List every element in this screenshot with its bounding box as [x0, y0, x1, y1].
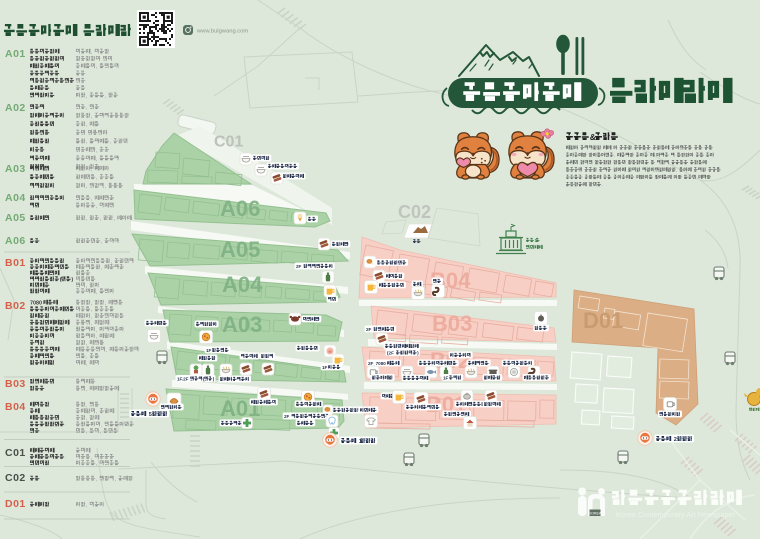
- svg-text:C02: C02: [398, 202, 431, 222]
- svg-text:.: .: [676, 168, 677, 173]
- svg-text:7080: 7080: [30, 301, 42, 307]
- svg-text:1F.2F: 1F.2F: [177, 377, 189, 382]
- svg-text:.: .: [614, 153, 615, 158]
- svg-text:A03: A03: [222, 312, 262, 337]
- svg-text:A01: A01: [5, 48, 26, 60]
- svg-text:B03: B03: [432, 311, 472, 336]
- svg-text:A02: A02: [5, 102, 26, 114]
- svg-text:2F: 2F: [368, 361, 374, 366]
- svg-text:A06: A06: [5, 235, 26, 247]
- svg-text:1F: 1F: [443, 376, 449, 381]
- svg-text:B01: B01: [5, 257, 26, 269]
- svg-text:C01: C01: [5, 447, 26, 459]
- svg-text:.: .: [601, 182, 602, 187]
- svg-text:C02: C02: [5, 472, 26, 484]
- svg-text:&: &: [590, 132, 596, 142]
- svg-text:A05: A05: [220, 237, 260, 262]
- svg-text:KOREA: KOREA: [589, 512, 602, 516]
- svg-text:A04: A04: [222, 272, 263, 297]
- svg-text:D01: D01: [583, 308, 623, 333]
- svg-text:1F: 1F: [206, 348, 212, 353]
- svg-text:7080: 7080: [376, 361, 387, 366]
- svg-text:(2F: (2F: [387, 351, 394, 356]
- svg-text:www.bulgwang.com: www.bulgwang.com: [196, 29, 248, 35]
- svg-text:D01: D01: [5, 498, 26, 510]
- svg-text:1F: 1F: [322, 365, 328, 370]
- svg-text:A04: A04: [5, 192, 26, 204]
- svg-text:2F: 2F: [366, 327, 372, 332]
- svg-text:2F: 2F: [284, 414, 290, 419]
- svg-text:A03: A03: [5, 163, 26, 175]
- svg-text:Korea Contemporary Art Newspap: Korea Contemporary Art Newspaper: [616, 510, 736, 519]
- svg-text:B04: B04: [5, 401, 26, 413]
- svg-text:B03: B03: [5, 378, 26, 390]
- svg-text:5: 5: [149, 412, 152, 418]
- svg-text:A05: A05: [5, 212, 26, 224]
- svg-text:B02: B02: [5, 300, 26, 312]
- svg-text:2: 2: [674, 437, 677, 443]
- svg-text:2F: 2F: [296, 264, 302, 269]
- svg-text:C01: C01: [214, 134, 243, 151]
- svg-text:A06: A06: [220, 196, 260, 221]
- svg-text:): ): [71, 277, 73, 283]
